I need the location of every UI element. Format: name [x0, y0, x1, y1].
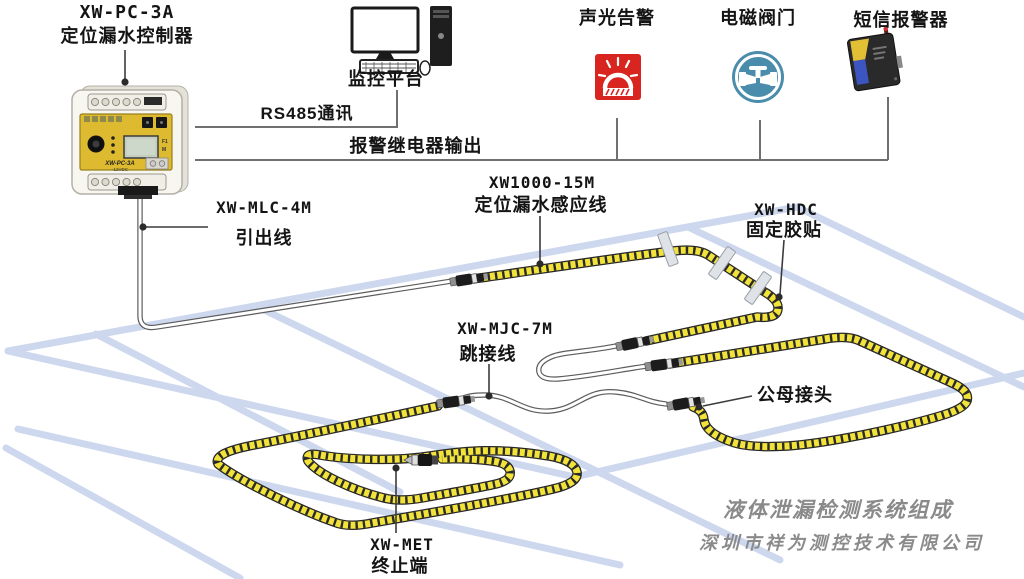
controller-key-f1: F1: [162, 139, 168, 145]
pipe-valve-icon: [732, 51, 784, 103]
terminator-model-label: XW-MET: [370, 536, 434, 554]
rs485-label: RS485通讯: [261, 105, 354, 124]
jumper-model-label: XW-MJC-7M: [457, 320, 553, 338]
male-female-connector: [644, 356, 683, 372]
bus-lines: [195, 90, 888, 160]
tape-model-label: XW-HDC: [754, 201, 818, 219]
jumper-name-label: 跳接线: [460, 345, 517, 365]
gsm-modem-icon: [846, 25, 906, 91]
solenoid-valve-label: 电磁阀门: [720, 9, 796, 29]
sensing-model-label: XW1000-15M: [489, 174, 595, 192]
controller-name-label: 定位漏水控制器: [61, 27, 194, 47]
siren-beacon-icon: [595, 54, 641, 100]
controller-model-label: XW-PC-3A: [80, 3, 175, 23]
floor-grid: [6, 207, 1024, 578]
jumper-cable-1: [539, 346, 647, 379]
leadout-model-label: XW-MLC-4M: [216, 199, 312, 217]
jumper-cable-2: [462, 392, 666, 411]
company-name: 深圳市祥为测控技术有限公司: [699, 534, 985, 554]
computer-workstation-icon: [352, 6, 452, 75]
connector-label: 公母接头: [757, 386, 833, 406]
sound-light-alarm-label: 声光告警: [579, 9, 655, 29]
diagram-canvas: F1 M XW-PC-3A -12VDC: [0, 0, 1024, 579]
leak-detection-system-diagram: F1 M XW-PC-3A -12VDC: [0, 0, 1024, 579]
relay-output-label: 报警继电器输出: [350, 137, 483, 157]
din-rail-controller-image: F1 M XW-PC-3A -12VDC: [72, 86, 188, 199]
controller-panel-marking: -12VDC: [112, 167, 129, 172]
connectors: [404, 271, 706, 466]
leadout-name-label: 引出线: [236, 229, 293, 249]
terminator-name-label: 终止端: [372, 557, 429, 577]
controller-key-m: M: [162, 147, 166, 153]
diagram-title: 液体泄漏检测系统组成: [723, 498, 953, 521]
sensing-name-label: 定位漏水感应线: [475, 196, 608, 216]
monitor-platform-label: 监控平台: [348, 70, 424, 90]
sms-alarm-label: 短信报警器: [854, 11, 949, 31]
male-female-connector: [449, 271, 488, 288]
tape-name-label: 固定胶贴: [746, 221, 822, 241]
